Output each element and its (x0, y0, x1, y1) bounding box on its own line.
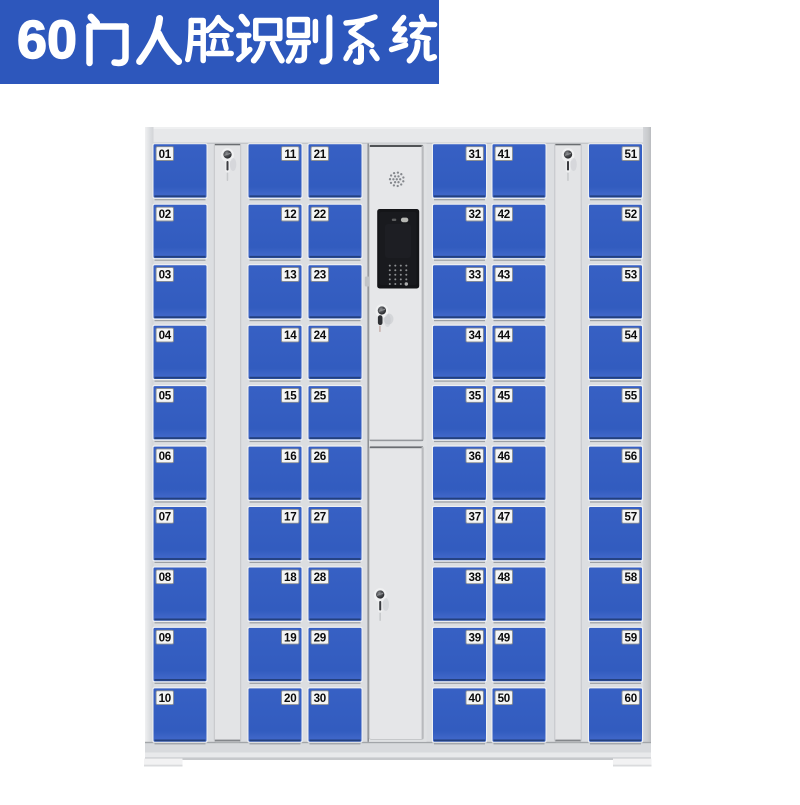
svg-text:58: 58 (625, 571, 638, 584)
svg-text:17: 17 (284, 511, 296, 524)
svg-text:19: 19 (284, 631, 297, 644)
svg-text:06: 06 (159, 450, 172, 463)
svg-text:20: 20 (284, 692, 296, 705)
svg-text:50: 50 (498, 692, 510, 705)
svg-text:30: 30 (314, 692, 326, 705)
svg-text:57: 57 (625, 511, 637, 524)
svg-text:54: 54 (625, 329, 638, 342)
svg-text:13: 13 (284, 269, 297, 282)
svg-text:26: 26 (314, 450, 327, 463)
svg-text:12: 12 (284, 208, 296, 221)
svg-text:49: 49 (498, 631, 511, 644)
svg-text:34: 34 (469, 329, 482, 342)
svg-text:45: 45 (498, 390, 511, 403)
svg-text:51: 51 (625, 148, 638, 161)
svg-text:27: 27 (314, 511, 326, 524)
svg-text:60: 60 (625, 692, 637, 705)
svg-text:28: 28 (314, 571, 327, 584)
svg-text:48: 48 (498, 571, 511, 584)
svg-text:53: 53 (625, 269, 638, 282)
svg-text:04: 04 (159, 329, 172, 342)
svg-text:40: 40 (469, 692, 481, 705)
svg-text:22: 22 (314, 208, 326, 221)
svg-text:16: 16 (284, 450, 297, 463)
svg-text:39: 39 (469, 631, 482, 644)
svg-text:37: 37 (469, 511, 481, 524)
svg-text:03: 03 (159, 269, 172, 282)
svg-text:15: 15 (284, 390, 297, 403)
svg-text:43: 43 (498, 269, 511, 282)
svg-text:46: 46 (498, 450, 511, 463)
svg-text:10: 10 (159, 692, 171, 705)
svg-text:14: 14 (284, 329, 297, 342)
svg-text:38: 38 (469, 571, 482, 584)
svg-text:05: 05 (159, 390, 172, 403)
svg-text:25: 25 (314, 390, 327, 403)
svg-text:41: 41 (498, 148, 511, 161)
svg-text:18: 18 (284, 571, 297, 584)
svg-text:07: 07 (159, 511, 171, 524)
svg-text:42: 42 (498, 208, 510, 221)
svg-text:02: 02 (159, 208, 171, 221)
svg-text:23: 23 (314, 269, 327, 282)
svg-text:35: 35 (469, 390, 482, 403)
svg-text:59: 59 (625, 631, 638, 644)
svg-text:32: 32 (469, 208, 481, 221)
svg-text:44: 44 (498, 329, 511, 342)
svg-text:08: 08 (159, 571, 172, 584)
svg-text:24: 24 (314, 329, 327, 342)
svg-text:55: 55 (625, 390, 638, 403)
svg-text:29: 29 (314, 631, 327, 644)
svg-text:36: 36 (469, 450, 482, 463)
svg-text:33: 33 (469, 269, 482, 282)
svg-text:31: 31 (469, 148, 482, 161)
svg-text:21: 21 (314, 148, 327, 161)
svg-text:47: 47 (498, 511, 510, 524)
svg-text:52: 52 (625, 208, 637, 221)
svg-text:56: 56 (625, 450, 638, 463)
svg-text:60: 60 (17, 10, 77, 70)
svg-text:01: 01 (159, 148, 172, 161)
svg-text:09: 09 (159, 631, 172, 644)
svg-text:11: 11 (284, 148, 297, 161)
